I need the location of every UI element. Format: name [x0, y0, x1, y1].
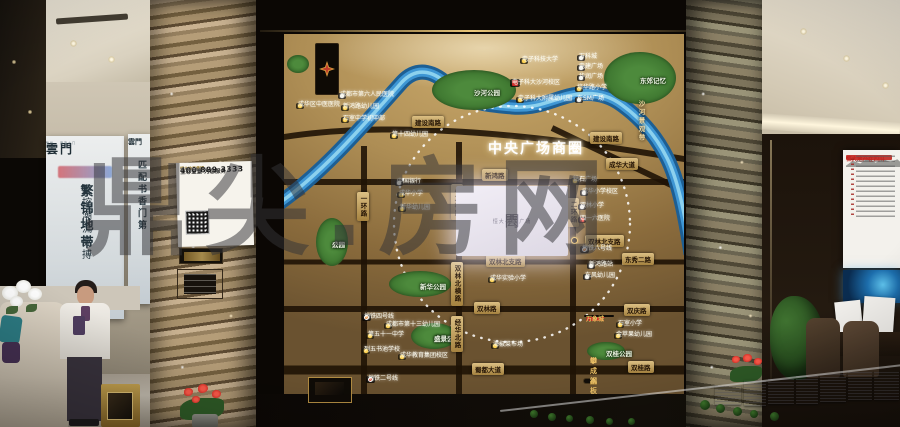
road-label: 双林路 [474, 302, 500, 314]
flower [28, 288, 42, 300]
map-poi-label: 成都市第十三幼儿园 [384, 323, 392, 329]
map-poi-label: 电建广场 [577, 65, 585, 71]
pansteel-badge: 攀成钢板块 [583, 378, 597, 384]
light-bokeh [12, 60, 16, 64]
model-tree [716, 404, 725, 413]
compass-icon [315, 43, 339, 95]
model-tree [586, 416, 594, 424]
map-poi-label: 第五十一中学 [366, 333, 374, 339]
white-flower-bouquet [0, 278, 46, 320]
map-poi-label: 电子科技大学 [520, 58, 528, 64]
model-building [768, 378, 794, 404]
map-poi-label: 培华路小学 [575, 86, 583, 92]
map-poi-label: 成都市第六人民医院 [338, 93, 346, 99]
red-flower [198, 384, 208, 393]
map-poi-label: 万科城 [577, 55, 585, 61]
ceiling-spotlight [882, 82, 889, 89]
map-poi-label: 电子科大附属幼儿园 [516, 97, 524, 103]
model-tree [606, 418, 613, 425]
map-poi-label: 华润广场 [577, 75, 585, 81]
sales-center-photo: 雲門 繁华 · 潮流之门 繁锦地带 掌控潮流脉搏 雲門 匹配书香门第 [0, 0, 900, 427]
armchair [806, 318, 840, 378]
mixc-name: 万象城 [586, 316, 604, 323]
red-flower [212, 390, 221, 398]
dark-window-area [0, 0, 46, 158]
model-tree [548, 413, 556, 421]
model-tree [566, 415, 573, 422]
gold-base-plaque [308, 377, 352, 403]
metro-line-badge: 地铁四号线 [362, 314, 371, 321]
model-tree [750, 410, 758, 418]
ceiling-left [46, 0, 150, 84]
model-building [848, 372, 872, 400]
riverside-label: 沙河景观带 [636, 100, 646, 143]
park-area [287, 55, 309, 73]
leaf [6, 306, 18, 314]
ceiling-spotlight [108, 56, 115, 63]
model-building [820, 374, 846, 402]
plaque-art [315, 382, 344, 395]
ceiling-spotlight [70, 40, 77, 47]
road-label: 蜀都大道 [472, 363, 504, 375]
ceiling-spotlight [843, 55, 850, 62]
road-label: 东秀二路 [622, 253, 654, 265]
map-poi-label: 金苹果幼儿园 [614, 333, 622, 339]
model-tree [628, 418, 635, 425]
map-poi-label: 成华实验小学 [488, 277, 496, 283]
ceiling-spotlight [800, 28, 807, 35]
gold-display-box [101, 384, 140, 427]
map-poi-label: 成华教育集团校区 [398, 354, 406, 360]
red-flower [184, 388, 193, 396]
model-building [715, 385, 741, 405]
model-tree [733, 407, 742, 416]
red-flower [754, 358, 762, 365]
project-list-lines [848, 155, 895, 217]
road-label: 经华北路 [451, 316, 463, 352]
mixc-badge: mixc 万象城 [584, 315, 614, 317]
pants [67, 357, 102, 421]
project-poster: 恒大地产在四川 [843, 150, 900, 268]
map-poi-label: 石室中学初中部 [341, 117, 349, 123]
map-poi-label: 第十四幼儿园 [390, 133, 398, 139]
map-poi-label: 列五书池学校 [362, 348, 370, 354]
leaf [26, 304, 37, 312]
map-poi-label: 东风幼儿园 [583, 274, 591, 280]
road-label: 双庆路 [624, 304, 650, 316]
throw-pillow [2, 342, 20, 363]
red-flower [732, 356, 740, 363]
light-bokeh [28, 110, 32, 114]
model-tree [530, 410, 538, 418]
red-flower [743, 354, 752, 362]
anthurium-plant [176, 384, 236, 427]
map-poi-label: 石室小学 [616, 322, 624, 328]
wall-plaque [177, 269, 223, 299]
yunmen-logo: 雲門 [128, 137, 142, 147]
photo-watermark: 鼎尖.房网 [84, 156, 618, 262]
map-poi-label: 海椒菜市场 [491, 343, 499, 349]
yunmen-tagline: 繁华 · 潮流之门 [46, 141, 76, 145]
pansteel-label: 攀成钢板块 [590, 356, 598, 394]
map-poi-label: 成华区中医医院 [296, 103, 304, 109]
map-poi-label: 电子科大沙河校区 [510, 79, 520, 87]
road-label: 建设南路 [590, 132, 622, 144]
box-artwork [107, 392, 133, 420]
flower-pot [192, 414, 218, 427]
model-building [874, 370, 899, 400]
road-label: 双桂路 [628, 361, 654, 373]
metro-line-badge: 地铁二号线 [366, 376, 375, 383]
model-building [744, 380, 766, 406]
model-building [796, 376, 818, 404]
model-tree [700, 400, 710, 410]
frame-highlight [260, 30, 686, 32]
map-poi-label: 新鸿路幼儿园 [341, 105, 349, 111]
held-object [73, 316, 85, 335]
model-tree [770, 412, 779, 421]
road-label: 建设南路 [412, 116, 444, 128]
shoes [69, 419, 99, 426]
map-poi-label: 东SM广场 [575, 97, 583, 103]
